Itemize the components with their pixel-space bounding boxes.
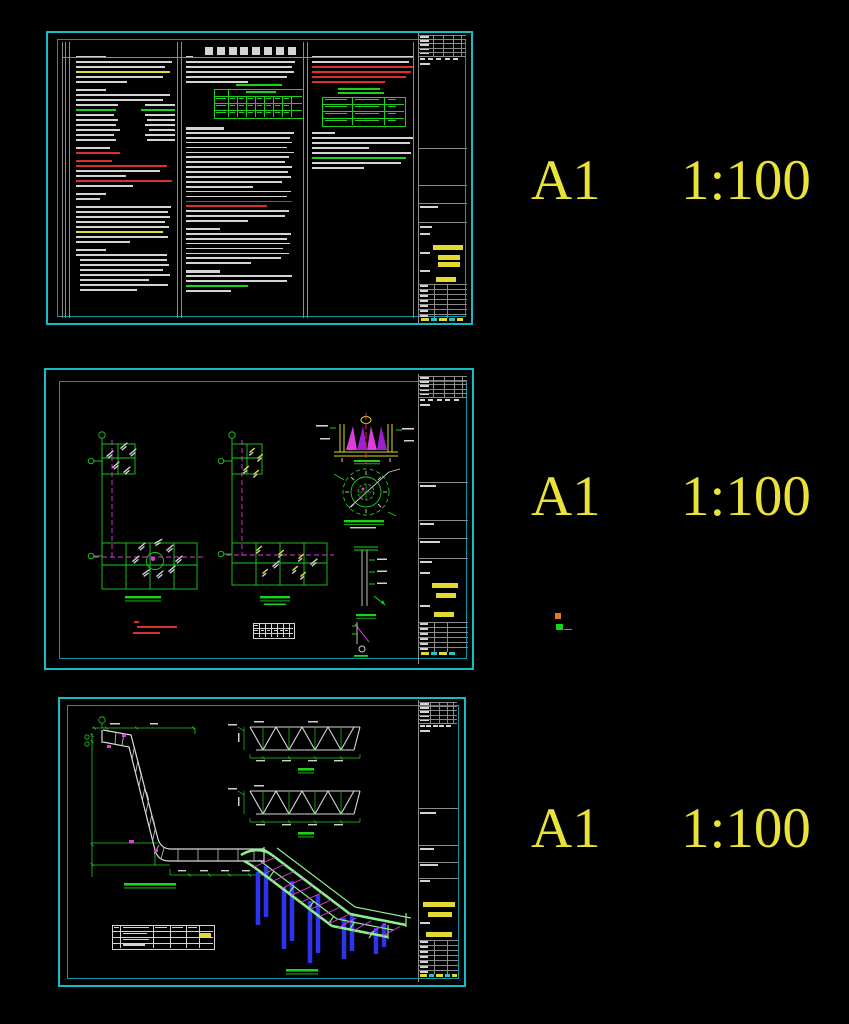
drawing-primitive: [186, 925, 187, 948]
note-text-value: [147, 139, 175, 141]
column-section-detail: [354, 547, 387, 619]
drawing-primitive: [216, 98, 226, 100]
title-block-cell-text: [431, 652, 437, 655]
note-text-line: [186, 275, 292, 277]
note-text-line: [186, 228, 220, 230]
drawing-primitive: [112, 931, 213, 932]
note-text-line: [312, 142, 410, 144]
note-text-line: [80, 279, 149, 281]
note-text-line: [76, 198, 100, 200]
title-block-label: [420, 310, 428, 312]
title-block-label: [420, 561, 432, 563]
note-text-line: [76, 76, 163, 78]
drawing-primitive: [229, 47, 237, 55]
note-text-line: [312, 71, 411, 73]
drawing-primitive: [252, 47, 260, 55]
note-text-line: [186, 71, 294, 73]
title-block-label: [437, 399, 442, 401]
isometric-view: [241, 848, 411, 974]
title-block-label: [420, 399, 425, 401]
title-block-cell-text: [439, 652, 447, 655]
drawing-primitive: [355, 120, 379, 122]
title-block-label: [420, 643, 428, 645]
footing-detail: [316, 413, 414, 464]
highlight-bar: [432, 583, 458, 588]
note-text-line: [186, 61, 295, 63]
title-block-left-edge: [418, 374, 419, 664]
title-block-label: [420, 390, 429, 392]
drawing-primitive: [259, 623, 260, 637]
title-block-label: [420, 58, 425, 60]
title-block-label: [420, 946, 428, 948]
note-text-line: [76, 254, 167, 256]
title-block-grid-line: [454, 376, 455, 397]
drawing-primitive: [564, 629, 572, 630]
drawing-primitive: [133, 632, 160, 634]
note-text-line: [186, 285, 248, 287]
title-block-label: [420, 730, 430, 732]
note-text-line: [312, 76, 406, 78]
drawing-primitive: [257, 98, 262, 100]
note-text-line: [76, 211, 168, 213]
title-block-label: [420, 285, 428, 287]
drawing-primitive: [123, 927, 149, 929]
note-text-line: [76, 241, 130, 243]
drawing-primitive: [112, 937, 213, 938]
note-text-line: [186, 280, 287, 282]
note-text-line: [312, 137, 413, 139]
title-block-label: [420, 40, 429, 42]
title-block-label: [420, 848, 434, 850]
note-text-line: [76, 109, 116, 111]
note-text-line: [76, 226, 169, 228]
title-block-cell-text: [431, 318, 437, 321]
note-text-line: [186, 290, 231, 292]
drawing-primitive: [273, 96, 274, 117]
title-block-label: [420, 233, 430, 235]
note-text-line: [76, 180, 172, 182]
title-block-label: [420, 941, 428, 943]
drawing-primitive: [384, 97, 385, 125]
drawing-primitive: [267, 630, 270, 631]
title-block-label: [420, 707, 429, 709]
note-text-line: [80, 284, 168, 286]
note-text-line: [186, 238, 287, 240]
note-text-line: [76, 216, 170, 218]
drawing-primitive: [355, 99, 379, 101]
paper-size-label: A1: [531, 468, 601, 526]
title-block-label: [428, 399, 433, 401]
drawing-primitive: [275, 112, 280, 114]
title-block-divider: [418, 862, 458, 863]
note-text-line: [80, 274, 170, 276]
title-block-divider: [418, 845, 458, 846]
drawing-primitive: [556, 624, 563, 630]
title-block-label: [420, 270, 430, 272]
note-text-line: [76, 170, 160, 172]
note-text-line: [186, 156, 289, 158]
title-block-label: [439, 725, 444, 727]
note-text-line: [76, 193, 106, 195]
note-text-line: [186, 132, 294, 134]
title-block-grid-line: [430, 702, 431, 723]
title-block-label: [420, 880, 430, 882]
drawing-primitive: [248, 112, 253, 114]
title-block-divider: [418, 808, 458, 809]
title-block-label: [454, 399, 459, 401]
title-block-label: [420, 394, 429, 396]
note-text-line: [186, 81, 248, 83]
note-text-line: [186, 137, 290, 139]
title-block-label: [420, 711, 429, 713]
drawing-primitive: [280, 630, 283, 631]
note-text-line: [186, 166, 292, 168]
note-text-line: [76, 61, 172, 63]
drawing-primitive: [123, 939, 149, 941]
title-block-grid-line: [453, 35, 454, 56]
note-text-line: [76, 185, 133, 187]
title-block-label: [420, 638, 428, 640]
drawing-primitive: [257, 112, 262, 114]
note-text-line: [76, 160, 112, 162]
title-block-label: [420, 252, 430, 254]
title-block-grid-line: [434, 284, 435, 318]
title-block-label: [420, 305, 428, 307]
title-block-label: [420, 206, 438, 208]
title-block-label: [420, 966, 428, 968]
title-block-grid-line: [439, 702, 440, 723]
title-block-cell-text: [445, 974, 450, 977]
drawing-primitive: [205, 47, 213, 55]
note-text-line: [312, 132, 335, 134]
title-block-cell-text: [436, 974, 443, 977]
scale-label: 1:100: [681, 800, 811, 858]
paper-size-label: A1: [531, 152, 601, 210]
drawing-primitive: [388, 99, 396, 101]
title-block-label: [420, 385, 429, 387]
drawing-primitive: [338, 92, 384, 94]
title-block-label: [433, 725, 438, 727]
drawing-primitive: [239, 98, 244, 100]
drawing-primitive: [355, 113, 379, 115]
title-block-grid-line: [433, 35, 434, 56]
title-block-divider: [418, 878, 458, 879]
drawing-primitive: [271, 623, 272, 637]
drawing-primitive: [114, 927, 119, 929]
note-text-line: [312, 147, 369, 149]
note-text-line: [76, 147, 110, 149]
title-block-divider: [418, 482, 468, 483]
title-block-divider: [418, 538, 468, 539]
title-block-cell-text: [439, 318, 447, 321]
drawing-primitive: [261, 630, 264, 631]
note-text-line: [186, 201, 292, 203]
title-block-grid-line: [447, 284, 448, 318]
drawing-primitive: [291, 96, 292, 117]
drawing-primitive: [188, 927, 197, 929]
drawing-primitive: [325, 99, 347, 101]
note-text-line: [76, 152, 120, 154]
note-text-line: [186, 76, 287, 78]
note-text-line: [186, 220, 248, 222]
note-text-line: [186, 262, 251, 264]
note-text-line: [76, 89, 106, 91]
drawing-primitive: [120, 925, 121, 948]
drawing-primitive: [177, 42, 178, 318]
note-text-line: [186, 176, 291, 178]
title-block-divider: [418, 148, 467, 149]
note-text-line: [76, 119, 118, 121]
note-text-line: [76, 114, 114, 116]
note-text-line: [76, 221, 165, 223]
drawing-primitive: [240, 47, 248, 55]
title-block-label: [420, 300, 428, 302]
drawing-primitive: [254, 630, 258, 631]
drawing-primitive: [277, 623, 278, 637]
title-block-label: [420, 523, 434, 525]
drawing-primitive: [230, 105, 235, 107]
note-text-line: [186, 142, 292, 144]
drawing-primitive: [307, 42, 308, 318]
title-block-grid-line: [434, 622, 435, 652]
note-text-line: [186, 181, 282, 183]
title-block-grid-line: [419, 56, 466, 57]
drawing-primitive: [388, 106, 396, 108]
title-block-cell-text: [421, 652, 429, 655]
title-block-label: [420, 971, 428, 973]
note-text-line: [76, 249, 106, 251]
title-block-label: [428, 58, 433, 60]
drawing-primitive: [181, 42, 182, 318]
note-text-line: [76, 231, 163, 233]
drawing-primitive: [276, 47, 284, 55]
note-text-line: [186, 215, 285, 217]
note-text-line: [76, 81, 127, 83]
highlight-bar: [434, 612, 454, 617]
note-text-line: [186, 191, 291, 193]
drawing-primitive: [230, 98, 235, 100]
title-block-label: [420, 956, 428, 958]
note-text-line: [186, 270, 220, 272]
note-text-line: [76, 66, 165, 68]
drawing-primitive: [248, 105, 253, 107]
note-text-value: [145, 134, 175, 136]
highlight-bar: [428, 912, 452, 917]
drawing-primitive: [228, 89, 229, 117]
scale-label: 1:100: [681, 152, 811, 210]
drawing-primitive: [289, 623, 290, 637]
note-text-value: [145, 104, 175, 106]
note-text-line: [186, 127, 224, 130]
note-text-line: [312, 81, 385, 83]
note-text-value: [145, 114, 175, 116]
note-text-line: [76, 236, 168, 238]
title-block-label: [426, 725, 431, 727]
drawing-primitive: [230, 112, 235, 114]
title-block-divider: [418, 203, 467, 204]
note-text-line: [186, 253, 289, 255]
drawing-primitive: [200, 933, 211, 937]
note-text-line: [186, 233, 291, 235]
drawing-primitive: [264, 96, 265, 117]
drawing-primitive: [255, 96, 256, 117]
title-block-label: [420, 633, 428, 635]
note-text-line: [312, 167, 364, 169]
drawing-primitive: [325, 106, 347, 108]
title-block-cell-text: [421, 318, 429, 321]
title-block-divider: [418, 520, 468, 521]
title-block-label: [420, 49, 429, 51]
drawing-primitive: [216, 112, 226, 114]
sheet-2-label-row: A1 1:100: [0, 468, 849, 528]
note-text-line: [312, 66, 413, 68]
note-text-line: [186, 196, 287, 198]
title-block-cell-text: [449, 652, 455, 655]
drawing-primitive: [123, 944, 145, 946]
title-block-label: [420, 628, 428, 630]
drawing-primitive: [285, 630, 288, 631]
title-block-grid-line: [433, 376, 434, 397]
note-text-line: [186, 171, 288, 173]
highlight-bar: [436, 277, 456, 282]
title-block-label: [420, 295, 428, 297]
note-text-line: [76, 99, 163, 101]
note-text-line: [186, 243, 290, 245]
drawing-primitive: [257, 105, 262, 107]
title-block-cell-text: [457, 318, 463, 321]
drawing-primitive: [62, 42, 63, 318]
drawing-primitive: [239, 105, 244, 107]
drawing-primitive: [352, 97, 353, 125]
note-text-line: [80, 264, 169, 266]
drawing-primitive: [246, 91, 276, 93]
note-text-line: [186, 66, 292, 68]
drawing-primitive: [284, 112, 289, 114]
cad-preview-canvas: A1 1:100 A1 1:100 A1 1:100: [0, 0, 849, 1024]
title-block-label: [436, 58, 441, 60]
title-block-left-edge: [418, 33, 419, 324]
drawing-primitive: [275, 98, 280, 100]
note-text-line: [312, 61, 409, 63]
title-block-label: [420, 36, 429, 38]
title-block-label: [420, 290, 428, 292]
title-block-label: [453, 58, 458, 60]
title-block-grid-line: [419, 397, 467, 398]
note-text-line: [76, 175, 126, 177]
highlight-bar: [426, 932, 452, 937]
drawing-primitive: [284, 105, 289, 107]
highlight-bar: [423, 902, 455, 907]
drawing-primitive: [134, 621, 139, 623]
note-text-line: [186, 257, 281, 259]
note-text-line: [76, 94, 170, 96]
drawing-primitive: [265, 623, 266, 637]
note-text-line: [186, 210, 289, 212]
title-block-label: [420, 63, 430, 65]
drawing-primitive: [325, 113, 347, 115]
drawing-primitive: [284, 98, 289, 100]
note-text-line: [186, 161, 285, 163]
note-text-line: [312, 157, 406, 159]
drawing-primitive: [172, 927, 183, 929]
title-block-label: [420, 922, 430, 924]
note-text-line: [186, 152, 294, 154]
title-block-label: [420, 812, 436, 814]
title-block-label: [446, 725, 451, 727]
title-block-label: [420, 315, 428, 317]
title-block-label: [420, 226, 432, 228]
drawing-primitive: [266, 105, 271, 107]
title-block-label: [420, 53, 429, 55]
drawing-primitive: [123, 933, 147, 935]
title-block-grid-line: [447, 702, 448, 723]
scale-label: 1:100: [681, 468, 811, 526]
drawing-primitive: [216, 105, 226, 107]
title-block-label: [420, 404, 430, 406]
title-block-divider: [418, 222, 467, 223]
note-text-line: [186, 205, 267, 207]
highlight-bar: [433, 245, 463, 250]
note-text-line: [186, 248, 283, 250]
title-block-label: [420, 485, 436, 487]
drawing-primitive: [137, 626, 177, 628]
title-block-grid-line: [434, 940, 435, 974]
note-text-line: [76, 139, 116, 141]
title-block-grid-line: [461, 35, 462, 56]
drawing-primitive: [355, 106, 379, 108]
base-detail: [352, 622, 369, 657]
drawing-primitive: [246, 96, 247, 117]
title-block-label: [420, 951, 428, 953]
drawing-primitive: [239, 112, 244, 114]
drawing-primitive: [303, 42, 304, 318]
note-text-line: [76, 165, 167, 167]
drawing-primitive: [264, 47, 272, 55]
note-text-value: [141, 109, 175, 111]
title-block-label: [420, 541, 440, 543]
note-text-value: [147, 119, 175, 121]
drawing-primitive: [283, 623, 284, 637]
drawing-primitive: [170, 925, 171, 948]
drawing-primitive: [555, 613, 561, 619]
note-text-line: [80, 259, 167, 261]
title-block-label: [420, 572, 430, 574]
title-block-label: [420, 377, 429, 379]
highlight-bar: [438, 262, 460, 267]
note-text-line: [80, 269, 163, 271]
title-block-label: [420, 648, 428, 650]
title-block-divider: [418, 185, 467, 186]
title-block-label: [420, 961, 428, 963]
drawing-primitive: [248, 98, 253, 100]
title-block-label: [420, 44, 429, 46]
note-text-line: [76, 71, 170, 73]
title-block-label: [420, 716, 429, 718]
drawing-primitive: [413, 42, 414, 318]
drawing-primitive: [69, 42, 70, 318]
drawing-primitive: [155, 927, 167, 929]
note-text-value: [145, 124, 175, 126]
drawing-primitive: [388, 113, 396, 115]
note-text-value: [149, 129, 175, 131]
title-block-label: [420, 605, 430, 607]
note-text-line: [312, 152, 411, 154]
drawing-primitive: [288, 47, 296, 55]
drawing-primitive: [274, 630, 277, 631]
sheet-3-label-row: A1 1:100: [0, 800, 849, 860]
paper-size-label: A1: [531, 800, 601, 858]
note-text-line: [76, 129, 120, 131]
